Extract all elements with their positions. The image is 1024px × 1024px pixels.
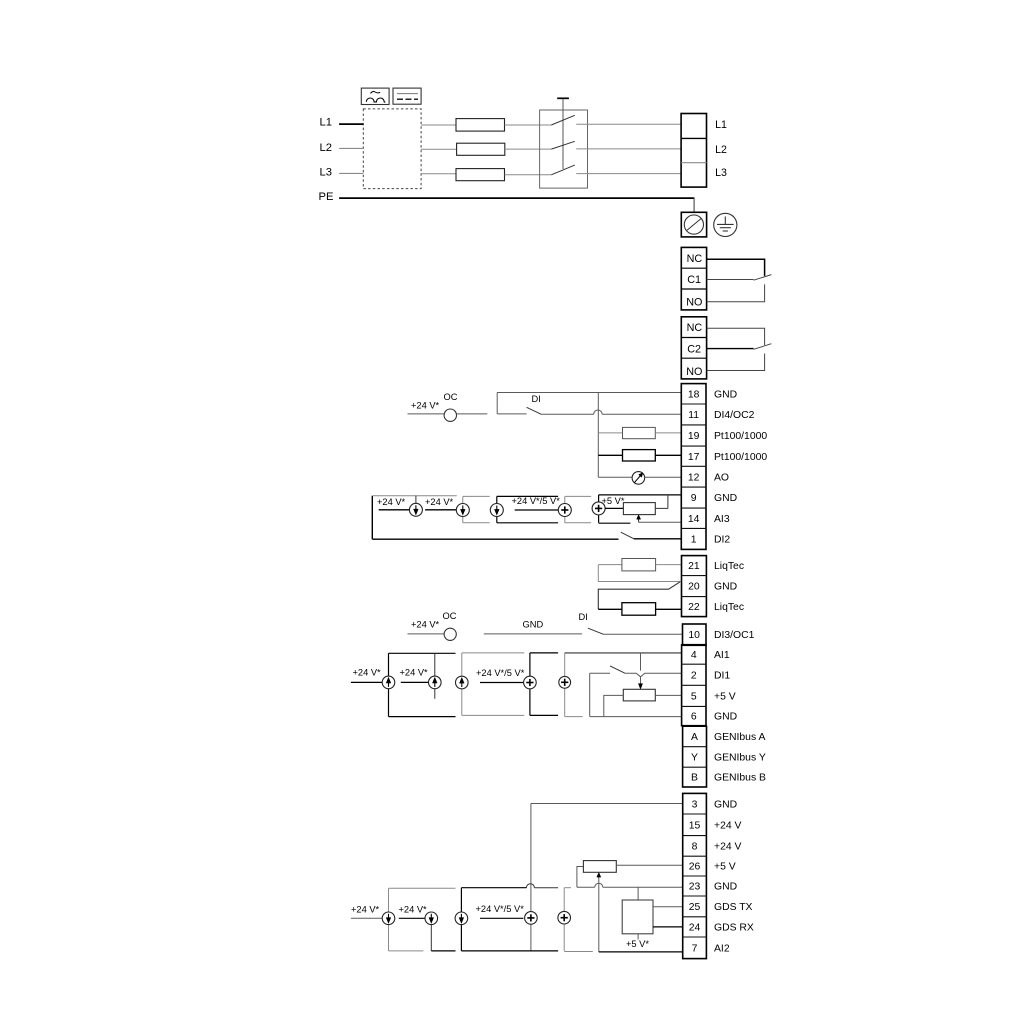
svg-text:AI1: AI1 — [714, 650, 730, 661]
svg-text:AI3: AI3 — [714, 514, 730, 525]
svg-text:L2: L2 — [715, 144, 727, 156]
svg-text:+24 V*/5 V*: +24 V*/5 V* — [476, 668, 525, 678]
svg-text:DI: DI — [579, 612, 588, 622]
svg-text:GND: GND — [714, 493, 737, 504]
svg-text:4: 4 — [691, 650, 697, 661]
svg-text:25: 25 — [689, 902, 701, 913]
svg-text:+24 V*: +24 V* — [377, 497, 406, 507]
svg-text:+5 V: +5 V — [714, 862, 736, 873]
svg-text:LiqTec: LiqTec — [714, 561, 744, 572]
svg-text:+24 V*: +24 V* — [411, 400, 440, 410]
svg-text:L1: L1 — [715, 119, 727, 131]
svg-text:GDS TX: GDS TX — [714, 902, 753, 913]
svg-text:Pt100/1000: Pt100/1000 — [714, 452, 767, 463]
svg-text:+24 V*: +24 V* — [400, 668, 429, 678]
svg-text:20: 20 — [688, 582, 700, 593]
svg-text:+24 V*: +24 V* — [399, 904, 428, 914]
svg-text:NO: NO — [686, 297, 702, 309]
svg-text:PE: PE — [319, 191, 334, 203]
svg-text:7: 7 — [692, 943, 698, 954]
svg-text:Pt100/1000: Pt100/1000 — [714, 431, 767, 442]
svg-text:10: 10 — [688, 630, 700, 641]
svg-text:8: 8 — [692, 842, 698, 853]
svg-text:NC: NC — [687, 253, 703, 265]
svg-text:1: 1 — [691, 535, 697, 546]
svg-text:23: 23 — [689, 882, 701, 893]
svg-text:19: 19 — [688, 431, 700, 442]
svg-text:OC: OC — [444, 392, 458, 402]
svg-text:L2: L2 — [320, 142, 332, 154]
svg-text:AI2: AI2 — [714, 943, 730, 954]
svg-text:GND: GND — [714, 882, 737, 893]
svg-text:22: 22 — [688, 602, 700, 613]
svg-text:+5 V*: +5 V* — [626, 939, 649, 949]
svg-text:DI1: DI1 — [714, 670, 730, 681]
svg-text:14: 14 — [688, 514, 700, 525]
svg-text:DI2: DI2 — [714, 535, 730, 546]
svg-text:5: 5 — [691, 691, 697, 702]
svg-text:L3: L3 — [715, 167, 727, 179]
svg-text:+24 V*: +24 V* — [353, 668, 382, 678]
svg-text:24: 24 — [689, 923, 701, 934]
svg-text:NC: NC — [687, 322, 703, 334]
svg-text:+24 V*/5 V*: +24 V*/5 V* — [476, 904, 525, 914]
svg-text:GND: GND — [714, 799, 737, 810]
svg-text:OC: OC — [443, 611, 457, 621]
svg-text:12: 12 — [688, 472, 700, 483]
svg-text:21: 21 — [688, 561, 700, 572]
svg-text:A: A — [691, 732, 698, 743]
svg-text:DI4/OC2: DI4/OC2 — [714, 410, 755, 421]
svg-text:GDS RX: GDS RX — [714, 923, 754, 934]
svg-text:Y: Y — [691, 753, 698, 764]
svg-text:LiqTec: LiqTec — [714, 602, 744, 613]
svg-text:DI: DI — [532, 394, 541, 404]
svg-text:26: 26 — [689, 862, 701, 873]
svg-text:17: 17 — [688, 452, 700, 463]
svg-text:NO: NO — [686, 366, 702, 378]
svg-text:+24 V*: +24 V* — [411, 619, 440, 629]
svg-text:GENIbus B: GENIbus B — [714, 773, 766, 784]
svg-text:6: 6 — [691, 712, 697, 723]
svg-text:GND: GND — [523, 619, 544, 629]
svg-text:18: 18 — [688, 389, 700, 400]
svg-text:9: 9 — [691, 493, 697, 504]
svg-text:DI3/OC1: DI3/OC1 — [714, 630, 755, 641]
svg-text:GND: GND — [714, 712, 737, 723]
svg-text:B: B — [691, 773, 698, 784]
svg-text:+5 V*: +5 V* — [602, 496, 625, 506]
svg-text:3: 3 — [692, 799, 698, 810]
svg-text:GENIbus A: GENIbus A — [714, 732, 765, 743]
svg-text:+24 V*: +24 V* — [425, 497, 454, 507]
svg-text:GENIbus Y: GENIbus Y — [714, 753, 766, 764]
svg-text:L3: L3 — [320, 166, 332, 178]
svg-text:L1: L1 — [320, 116, 332, 128]
svg-text:AO: AO — [714, 472, 729, 483]
svg-text:GND: GND — [714, 389, 737, 400]
svg-text:+24 V*/5 V*: +24 V*/5 V* — [512, 496, 561, 506]
svg-text:C2: C2 — [687, 344, 701, 356]
svg-text:+5 V: +5 V — [714, 691, 736, 702]
svg-text:11: 11 — [688, 410, 699, 421]
svg-text:GND: GND — [714, 582, 737, 593]
svg-text:+24 V*: +24 V* — [351, 904, 380, 914]
svg-text:2: 2 — [691, 670, 697, 681]
svg-text:+24 V: +24 V — [714, 820, 742, 831]
svg-text:15: 15 — [689, 820, 701, 831]
svg-text:+24 V: +24 V — [714, 842, 742, 853]
svg-text:C1: C1 — [687, 274, 701, 286]
